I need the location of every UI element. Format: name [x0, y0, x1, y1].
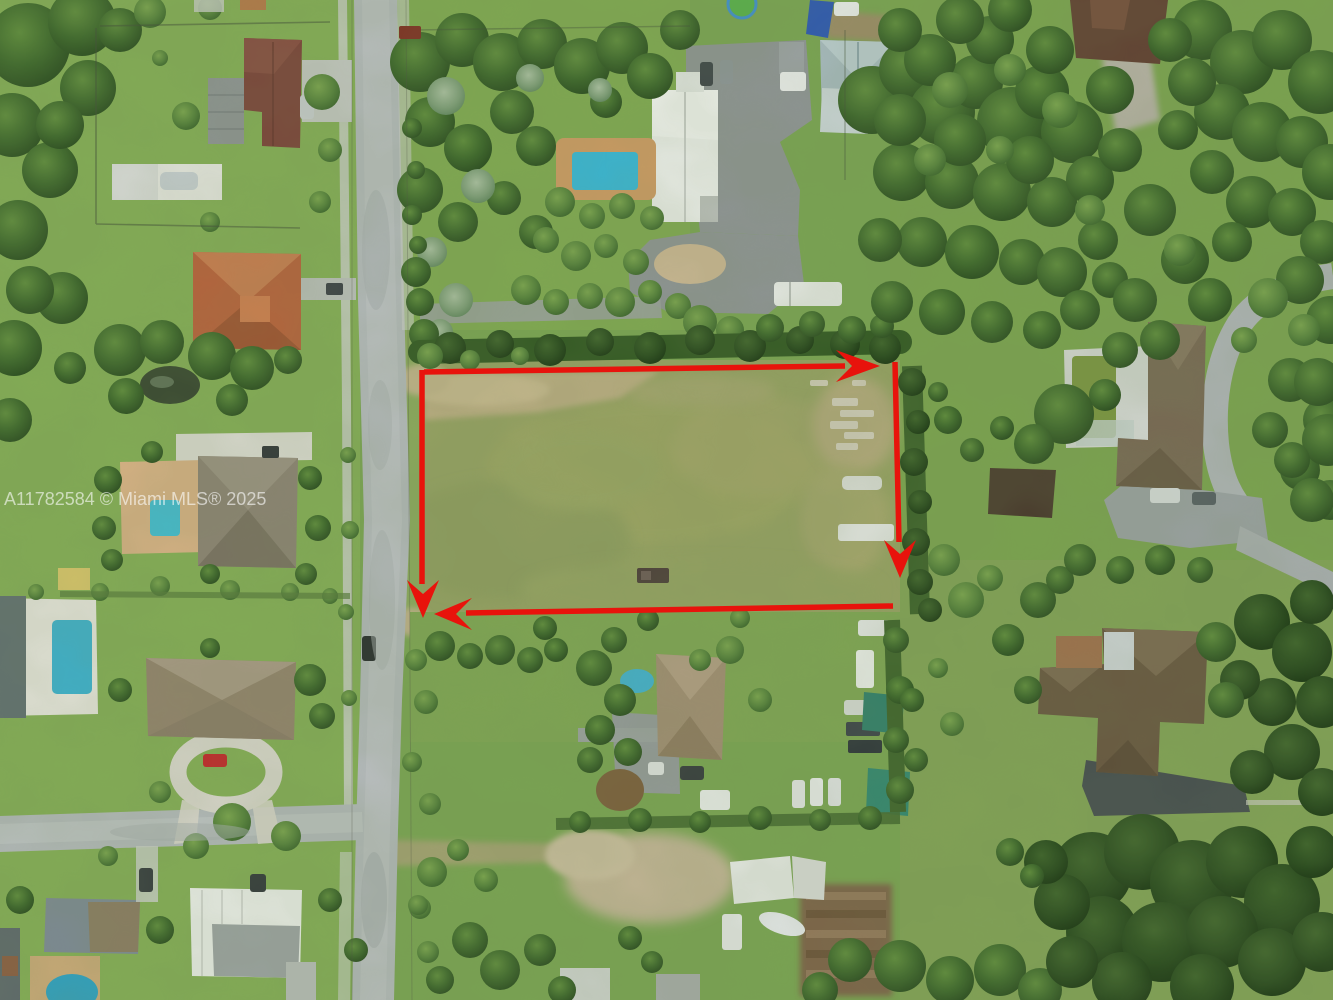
svg-text:A11782584 © Miami MLS® 2025: A11782584 © Miami MLS® 2025	[4, 489, 266, 509]
